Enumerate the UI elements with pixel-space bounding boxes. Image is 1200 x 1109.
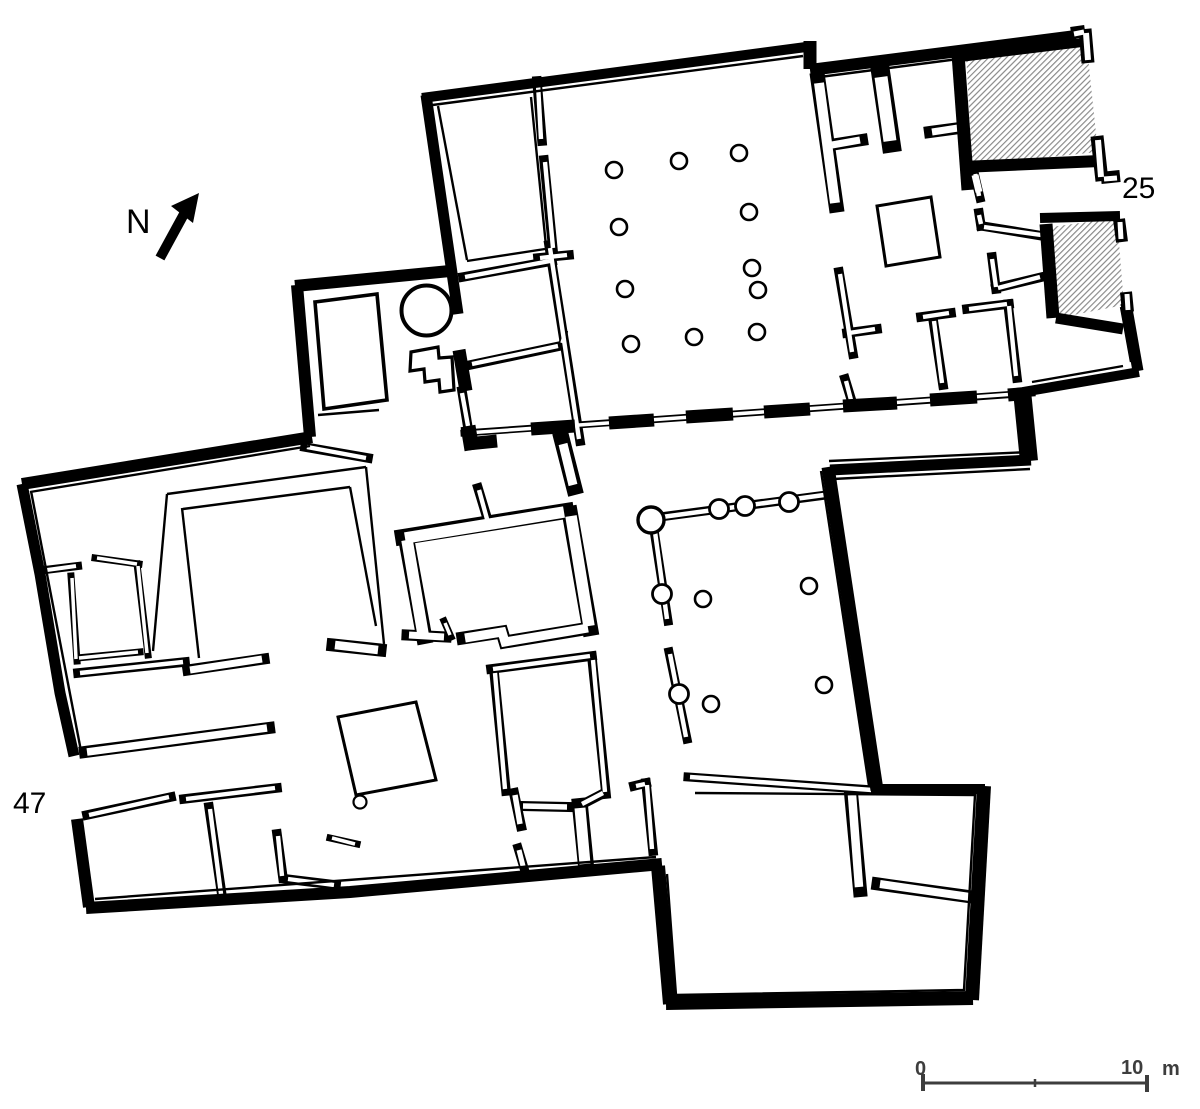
- svg-text:m: m: [1162, 1058, 1180, 1080]
- svg-text:25: 25: [1122, 172, 1155, 205]
- svg-text:N: N: [126, 203, 151, 241]
- svg-text:10: 10: [1121, 1057, 1143, 1079]
- svg-text:0: 0: [915, 1058, 926, 1080]
- svg-text:47: 47: [13, 787, 46, 820]
